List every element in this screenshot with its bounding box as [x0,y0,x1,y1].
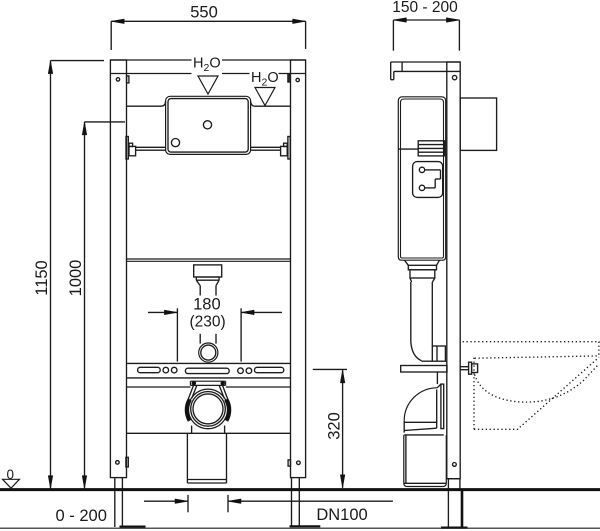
svg-text:(230): (230) [190,314,226,331]
svg-text:180: 180 [193,295,221,313]
svg-text:550: 550 [190,3,218,21]
svg-text:DN100: DN100 [316,506,367,524]
svg-text:1150: 1150 [33,260,51,295]
svg-text:150 - 200: 150 - 200 [392,0,458,16]
svg-text:0: 0 [6,467,14,482]
svg-text:0 - 200: 0 - 200 [56,507,107,525]
svg-text:1000: 1000 [67,260,85,297]
svg-text:320: 320 [326,412,344,440]
